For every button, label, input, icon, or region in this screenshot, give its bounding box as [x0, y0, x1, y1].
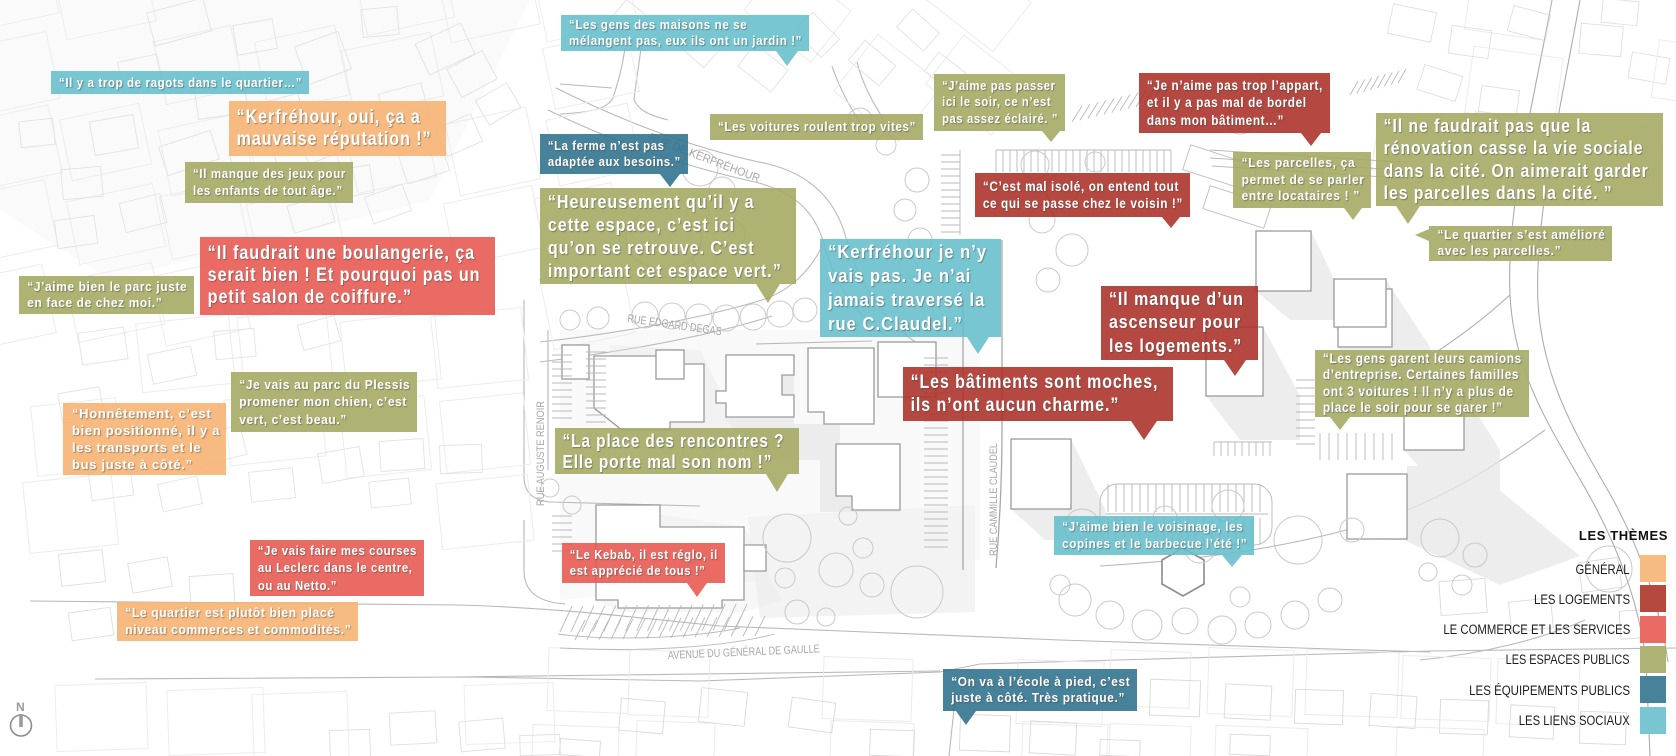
svg-text:AVENUE DU GÉNÉRAL DE GAULLE: AVENUE DU GÉNÉRAL DE GAULLE	[668, 642, 821, 662]
svg-text:RUE CAMMILLE CLAUDEL: RUE CAMMILLE CLAUDEL	[988, 443, 1000, 556]
svg-text:RUE AUGUSTE RENOIR: RUE AUGUSTE RENOIR	[535, 401, 547, 506]
svg-text:N: N	[16, 700, 25, 714]
